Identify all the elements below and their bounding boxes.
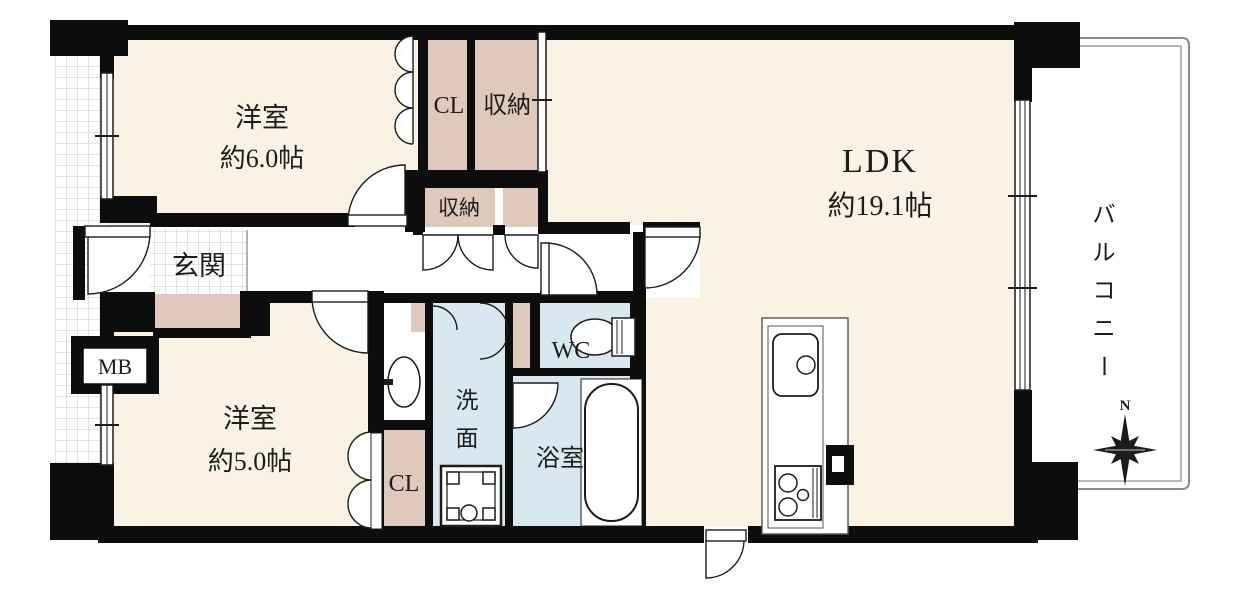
storage-hall-label: 収納	[438, 196, 480, 220]
stove-icon	[775, 466, 821, 520]
entrance-label: 玄関	[172, 251, 226, 281]
floor-plan: 洋室 約6.0帖 CL 収納 収納 LDK 約19.1帖 玄関 MB 洋室 約5…	[0, 0, 1242, 603]
closet-top-label: CL	[434, 93, 465, 119]
bedroom2-door-leaf	[312, 291, 368, 302]
closet-top-bifold	[395, 36, 413, 144]
svg-text:ル: ル	[1093, 240, 1116, 265]
svg-text:洗: 洗	[456, 388, 479, 413]
kitchen-wall-stub-notch	[832, 456, 844, 472]
floor-plan-svg: 洋室 約6.0帖 CL 収納 収納 LDK 約19.1帖 玄関 MB 洋室 約5…	[0, 0, 1242, 603]
svg-text:面: 面	[456, 426, 479, 451]
bathroom-label: 浴室	[536, 445, 584, 472]
hall-east-door-leaf	[541, 243, 549, 295]
shoe-cabinet-area	[153, 294, 247, 330]
toilet-label: WC	[552, 338, 591, 364]
svg-text:ー: ー	[1091, 355, 1116, 378]
ldk-door-leaf	[645, 227, 700, 237]
entry-door-swing	[88, 232, 150, 294]
north-label: N	[1120, 398, 1131, 414]
meter-box-label: MB	[98, 354, 132, 379]
washing-machine-icon	[441, 466, 501, 526]
bedroom2-size: 約5.0帖	[208, 447, 293, 476]
bedroom2-label: 洋室	[223, 404, 277, 434]
storage-top-label: 収納	[483, 92, 531, 119]
kitchen-sink-icon	[773, 334, 818, 396]
svg-text:ニ: ニ	[1093, 316, 1116, 341]
closet-bottom-label: CL	[389, 471, 420, 497]
balcony-area	[1032, 40, 1190, 490]
bathtub-icon	[581, 379, 642, 526]
svg-text:バ: バ	[1093, 202, 1116, 227]
service-door-leaf	[706, 530, 746, 541]
bedroom1-label: 洋室	[235, 103, 289, 133]
svg-text:コ: コ	[1093, 278, 1116, 303]
wc-side-closet	[513, 300, 530, 368]
ldk-size: 約19.1帖	[827, 190, 932, 222]
service-door-swing	[706, 540, 744, 578]
bedroom1-door-leaf	[348, 215, 407, 226]
bedroom1-size: 約6.0帖	[220, 144, 305, 173]
kitchen-counter-icon	[762, 318, 854, 534]
storage-hall2-area	[503, 185, 540, 227]
entry-door-leaf	[85, 226, 150, 237]
ldk-label: LDK	[842, 143, 918, 180]
vanity-nook-pink	[411, 300, 425, 332]
